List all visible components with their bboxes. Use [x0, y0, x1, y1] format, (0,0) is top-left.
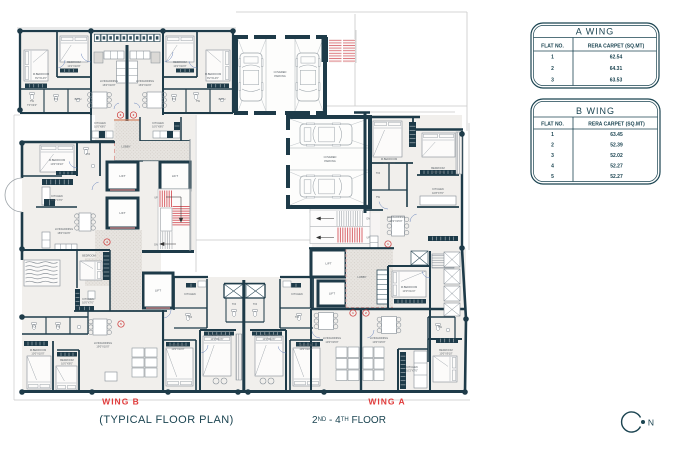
svg-text:COVERED: COVERED [324, 155, 337, 159]
svg-text:16'0"X10'0": 16'0"X10'0" [102, 83, 115, 87]
svg-text:TOI: TOI [253, 302, 258, 306]
svg-text:KITCHEN: KITCHEN [94, 121, 106, 125]
svg-text:UP: UP [154, 197, 158, 200]
svg-text:8'2"X14'0": 8'2"X14'0" [207, 76, 219, 80]
svg-text:M.BEDROOM: M.BEDROOM [205, 72, 221, 76]
svg-text:N: N [648, 418, 654, 428]
svg-text:TOI: TOI [188, 315, 193, 319]
svg-text:LIFT: LIFT [155, 289, 161, 293]
svg-text:(TYPICAL FLOOR PLAN): (TYPICAL FLOOR PLAN) [99, 414, 234, 426]
svg-text:4: 4 [551, 164, 554, 170]
svg-text:BEDROOM: BEDROOM [431, 166, 444, 170]
svg-text:TOI: TOI [32, 325, 37, 329]
svg-text:WING A: WING A [368, 396, 405, 406]
svg-text:LIVING/DINING: LIVING/DINING [136, 79, 154, 83]
svg-text:LIVING/DINING: LIVING/DINING [323, 336, 341, 340]
svg-text:BEDROOM: BEDROOM [171, 343, 184, 347]
svg-text:10'0"X9'10": 10'0"X9'10" [50, 162, 63, 166]
svg-text:UP: UP [367, 237, 371, 240]
svg-text:KITCHEN: KITCHEN [152, 121, 164, 125]
svg-text:LOBBY: LOBBY [357, 275, 366, 279]
svg-text:FLAT NO.: FLAT NO. [541, 44, 564, 50]
svg-text:M.BEDROOM: M.BEDROOM [33, 72, 49, 76]
svg-text:10'0"X10'0": 10'0"X10'0" [31, 352, 44, 356]
svg-text:64.31: 64.31 [610, 66, 623, 72]
svg-text:BEDROOM: BEDROOM [67, 60, 80, 64]
svg-text:LIFT: LIFT [325, 262, 331, 266]
svg-text:BATH: BATH [75, 97, 82, 101]
svg-text:KITCHEN: KITCHEN [82, 297, 94, 301]
svg-text:WING B: WING B [102, 396, 140, 406]
svg-text:TW: TW [438, 325, 443, 329]
svg-text:63.53: 63.53 [610, 78, 623, 84]
svg-text:TOI: TOI [232, 302, 237, 306]
svg-text:7'0"X4'0": 7'0"X4'0" [27, 103, 37, 107]
svg-text:BEDROOM: BEDROOM [439, 348, 452, 352]
svg-text:FLAT NO.: FLAT NO. [541, 122, 564, 128]
svg-text:LOBBY: LOBBY [121, 145, 130, 149]
svg-text:2: 2 [551, 66, 554, 72]
svg-text:LIFT: LIFT [119, 211, 125, 215]
svg-text:10'1"X10'0": 10'1"X10'0" [67, 64, 80, 68]
svg-text:COVERED: COVERED [274, 70, 287, 74]
svg-text:B WING: B WING [576, 106, 615, 116]
svg-text:3: 3 [551, 78, 554, 84]
svg-text:8'2"X14'0": 8'2"X14'0" [35, 76, 47, 80]
svg-text:18'0"X10'6": 18'0"X10'6" [57, 231, 70, 235]
svg-text:10'0"X9'10": 10'0"X9'10" [382, 161, 395, 165]
svg-text:M.BEDROOM: M.BEDROOM [381, 157, 397, 161]
svg-text:RERA CARPET (SQ.MT): RERA CARPET (SQ.MT) [588, 122, 645, 128]
svg-text:10'8"X10'0": 10'8"X10'0" [431, 170, 444, 174]
svg-text:LIVING/DINING: LIVING/DINING [55, 227, 73, 231]
svg-text:10'2"X7'6": 10'2"X7'6" [51, 198, 63, 202]
svg-text:10'2"X7'0": 10'2"X7'0" [406, 369, 418, 373]
svg-text:TOI: TOI [172, 97, 177, 101]
svg-text:TW: TW [30, 99, 35, 103]
svg-text:TOI: TOI [86, 152, 91, 156]
svg-text:M.BEDROOM: M.BEDROOM [401, 285, 417, 289]
svg-text:TOI: TOI [376, 171, 381, 175]
svg-text:KITCHEN: KITCHEN [432, 187, 444, 191]
svg-text:BATH: BATH [219, 97, 226, 101]
svg-text:LIFT: LIFT [172, 174, 178, 178]
svg-text:KITCHEN: KITCHEN [291, 292, 303, 296]
svg-text:BEDROOM: BEDROOM [299, 343, 312, 347]
svg-text:10'0"X9'10": 10'0"X9'10" [439, 352, 452, 356]
svg-text:10'8"X7'0": 10'8"X7'0" [432, 191, 444, 195]
svg-text:A WING: A WING [576, 27, 615, 37]
svg-text:2: 2 [551, 143, 554, 149]
svg-text:M.BEDROOM: M.BEDROOM [30, 348, 46, 352]
svg-text:TW: TW [376, 195, 381, 199]
svg-text:10'0"X15'0": 10'0"X15'0" [325, 340, 338, 344]
svg-text:KITCHEN: KITCHEN [406, 365, 418, 369]
svg-text:52.02: 52.02 [610, 153, 623, 159]
svg-text:10'2"X15'0": 10'2"X15'0" [389, 219, 402, 223]
svg-text:52.27: 52.27 [610, 164, 623, 170]
svg-text:LIFT: LIFT [119, 174, 125, 178]
svg-text:10'0"X15'0": 10'0"X15'0" [372, 340, 385, 344]
svg-text:10'0"X7'0": 10'0"X7'0" [82, 301, 94, 305]
svg-text:DN: DN [367, 218, 371, 221]
svg-text:KITCHEN: KITCHEN [184, 292, 196, 296]
svg-text:LIVING/DINING: LIVING/DINING [387, 215, 405, 219]
svg-text:63.45: 63.45 [610, 132, 623, 138]
svg-text:LIVING/DINING: LIVING/DINING [94, 341, 112, 345]
svg-text:5: 5 [551, 174, 554, 180]
svg-text:PARKING: PARKING [324, 159, 335, 163]
svg-text:10'0"X10'0": 10'0"X10'0" [299, 347, 312, 351]
svg-text:62.54: 62.54 [610, 55, 623, 61]
svg-text:10'0"X11'6": 10'0"X11'6" [262, 337, 275, 341]
svg-text:DN: DN [154, 244, 158, 247]
svg-text:BEDROOM: BEDROOM [173, 60, 186, 64]
svg-text:52.39: 52.39 [610, 143, 623, 149]
svg-text:10'0"X8'0": 10'0"X8'0" [152, 125, 164, 129]
svg-text:LIVING/DINING: LIVING/DINING [100, 79, 118, 83]
svg-text:KITCHEN: KITCHEN [51, 194, 63, 198]
svg-text:LIFT: LIFT [329, 292, 335, 296]
svg-text:BEDROOM: BEDROOM [60, 358, 73, 362]
svg-text:52.27: 52.27 [610, 174, 623, 180]
svg-text:3: 3 [551, 153, 554, 159]
svg-text:1: 1 [551, 132, 554, 138]
svg-text:10'0"X9'0": 10'0"X9'0" [61, 362, 73, 366]
svg-text:10'0"X11'0": 10'0"X11'0" [402, 289, 415, 293]
svg-text:1: 1 [551, 55, 554, 61]
svg-text:TW: TW [196, 99, 201, 103]
svg-text:10'0"X11'6": 10'0"X11'6" [210, 337, 223, 341]
svg-text:TOI: TOI [54, 97, 59, 101]
svg-text:M.BEDROOM: M.BEDROOM [261, 333, 277, 337]
svg-text:16'0"X10'0": 16'0"X10'0" [138, 83, 151, 87]
svg-text:10'1"X10'0": 10'1"X10'0" [173, 64, 186, 68]
svg-text:RERA CARPET (SQ.MT): RERA CARPET (SQ.MT) [588, 44, 645, 50]
svg-text:M.BEDROOM: M.BEDROOM [49, 158, 65, 162]
svg-text:PARKING: PARKING [274, 74, 285, 78]
svg-text:M.BEDROOM: M.BEDROOM [209, 333, 225, 337]
svg-text:10'0"X8'0": 10'0"X8'0" [94, 125, 106, 129]
svg-text:TOI: TOI [295, 315, 300, 319]
svg-text:10'0"X10'0": 10'0"X10'0" [171, 347, 184, 351]
svg-text:LIVING/DINING: LIVING/DINING [370, 336, 388, 340]
svg-text:19'0"X10'0": 19'0"X10'0" [96, 345, 109, 349]
svg-text:TW: TW [56, 325, 61, 329]
svg-text:BEDROOM: BEDROOM [82, 254, 95, 258]
